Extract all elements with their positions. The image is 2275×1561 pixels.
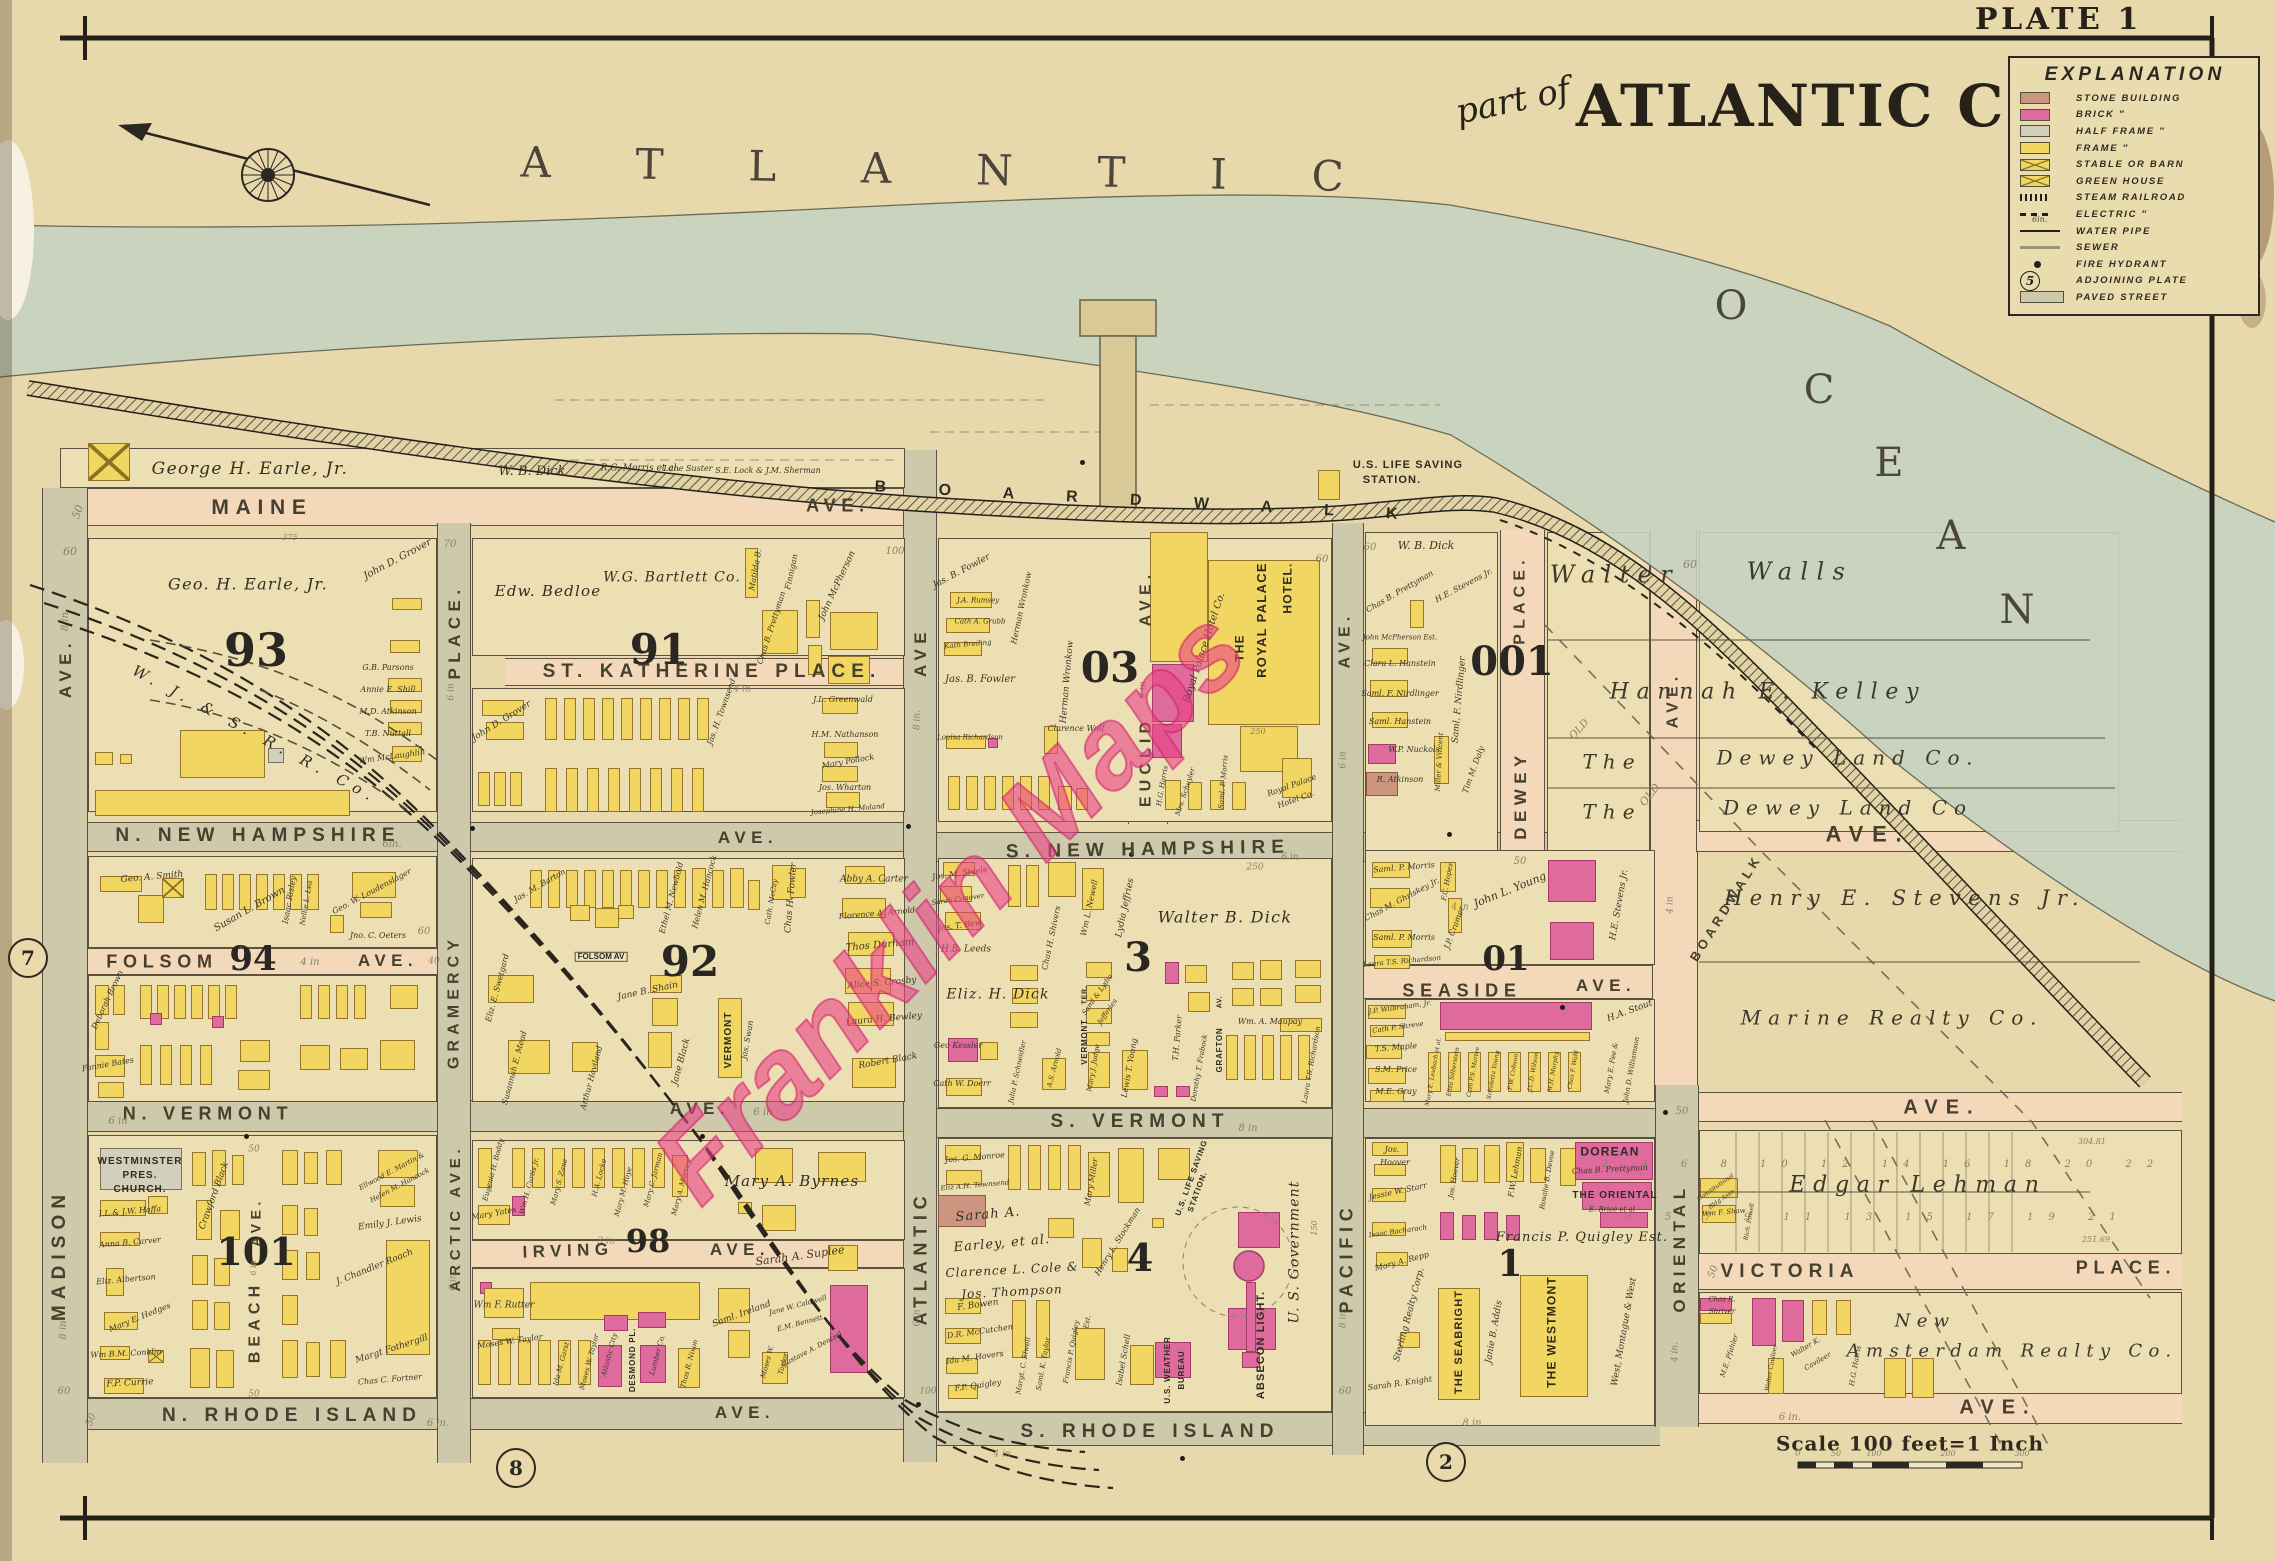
map-label: Fannie Bates: [81, 1056, 134, 1073]
map-label: PLACE.: [1513, 555, 1530, 644]
map-label: J.A. Rumsey: [957, 597, 999, 604]
map-label: J.C.D. Wilson: [1528, 1052, 1541, 1092]
legend-item: STEAM RAILROAD: [2020, 190, 2250, 207]
map-label: Hoover: [1380, 1159, 1410, 1167]
map-label: Mary M. Hoye: [614, 1166, 634, 1217]
legend-item: FRAME ″: [2020, 140, 2250, 157]
map-label: Cath A. Grubb: [955, 618, 1006, 625]
map-label: Clarence L. Cole &: [945, 1260, 1079, 1280]
map-label: Susannah E. Mead: [501, 1030, 529, 1106]
map-label: 3 in: [597, 1237, 614, 1246]
map-label: STATION.: [1363, 475, 1422, 487]
legend-symbol-shape: [2020, 159, 2050, 171]
map-label: Scholetta Young: [1487, 1050, 1502, 1100]
map-label: U. S. Government: [1288, 1180, 1303, 1323]
map-label: Moses W.: [760, 1345, 776, 1379]
adjoining-plate-number: 7: [8, 938, 48, 978]
map-label: FOLSOM AV: [575, 952, 628, 962]
legend-item: BRICK ″: [2020, 107, 2250, 124]
map-label: Geo. H. Earle, Jr.: [168, 577, 328, 594]
map-label: Eliz A.H. Townsend: [940, 1179, 1009, 1192]
map-label: H.M. Nathanson: [812, 731, 879, 739]
brick-legend-icon: [2020, 108, 2076, 122]
map-label: G.B. Parsons: [362, 664, 413, 672]
legend-item-label: FIRE HYDRANT: [2076, 259, 2167, 270]
map-label: Geo Kessler: [934, 1042, 982, 1050]
map-label: J. Chandler Roach: [335, 1248, 415, 1287]
map-label: Anna B. Carver: [99, 1236, 162, 1250]
map-label: Clara L. Hanstein: [1364, 660, 1436, 668]
map-label: 8 in: [59, 1320, 70, 1339]
map-label: West, Montague & West: [1611, 1277, 1639, 1387]
map-label: AVE.: [1666, 672, 1683, 729]
map-label: Edw. Bedloe: [495, 584, 602, 600]
map-label: 8 in: [1238, 1124, 1257, 1135]
map-label: John D. Williamson: [1623, 1036, 1642, 1103]
map-label: Jos. Hoover: [1448, 1157, 1462, 1199]
map-label: Annie E. Shill: [360, 686, 415, 694]
map-label: Mary Pollock: [821, 753, 875, 770]
legend-item: HALF FRAME ″: [2020, 123, 2250, 140]
map-label: B O A R D W A L K: [874, 479, 1422, 524]
map-label: Kath Breiling: [944, 639, 992, 650]
map-label: 2 4 6 8 10 12 14 16 18 20 22: [1602, 1160, 2168, 1171]
map-label: Geo. W. Loudenslager: [331, 868, 413, 917]
map-label: AVE.: [710, 1241, 770, 1259]
legend-symbol-shape: [2020, 291, 2064, 303]
map-label: Mary Miller: [1084, 1157, 1101, 1206]
legend-symbol-shape: [2020, 194, 2050, 201]
map-label: Thos R. Nixon: [680, 1339, 700, 1389]
map-label: Crawford Black: [198, 1161, 231, 1231]
map-label: N. NEW HAMPSHIRE: [115, 826, 400, 846]
map-label: 50: [70, 503, 86, 520]
map-label: DOREAN: [1580, 1146, 1639, 1159]
legend-symbol-shape: [2020, 142, 2050, 154]
legend-item-label: STONE BUILDING: [2076, 93, 2181, 104]
map-label: Geo. A. Smith: [120, 871, 183, 886]
map-label: SEASIDE: [1402, 982, 1521, 1001]
paved-legend-icon: [2020, 290, 2076, 304]
map-label: 60: [1683, 559, 1697, 571]
map-label: 8 in: [1462, 1419, 1481, 1430]
electric-legend-icon: [2020, 207, 2076, 221]
legend-item-label: PAVED STREET: [2076, 292, 2168, 303]
map-label: Saml. P. Morris: [1218, 755, 1230, 809]
legend-item: STONE BUILDING: [2020, 90, 2250, 107]
map-label: 98: [626, 1225, 671, 1259]
map-label: PLACE.: [446, 585, 464, 680]
legend-symbol-shape: [2034, 261, 2041, 268]
legend-item-label: ELECTRIC ″: [2076, 209, 2148, 220]
map-label: 50: [85, 1412, 99, 1428]
map-label: Hannah E. Kelley: [1610, 680, 1927, 703]
map-label: Edgar Lehman: [1789, 1173, 2046, 1196]
map-label: AVE.: [358, 952, 418, 970]
map-label: Saml. F. Nirdlinger: [1361, 690, 1438, 698]
map-label: Jas. B. Fowler: [945, 675, 1015, 686]
map-label: Marine Realty Co.: [1741, 1008, 2044, 1029]
map-label: BEACH: [248, 1281, 265, 1364]
map-label: F.P. Quigley: [954, 1379, 1002, 1394]
map-label: AVE.: [715, 1404, 775, 1422]
map-label: A: [1937, 515, 2000, 557]
map-label: Eliza Silberstein: [1447, 1047, 1462, 1097]
map-label: ARCTIC AVE.: [448, 1145, 464, 1292]
map-label: T.H. Parker: [1172, 1015, 1184, 1061]
map-label: 60: [418, 927, 431, 938]
map-label: S.E. Lock & J.M. Sherman: [715, 467, 820, 475]
map-label: Jos. G. Monroe: [945, 1151, 1005, 1165]
map-label: Herman Wronkow: [1010, 571, 1034, 645]
map-label: Nellie L. Lea: [299, 880, 314, 926]
legend-item-label: ADJOINING PLATE: [2076, 275, 2188, 286]
map-label: Eugenia H. Boddy: [482, 1138, 506, 1202]
map-label: 250: [1250, 728, 1265, 736]
map-label: Dewey Land Co.: [1716, 748, 1979, 769]
map-label: 50: [1707, 1264, 1721, 1280]
sewer-legend-icon: [2020, 241, 2076, 255]
adjoining-plate-number: 2: [1426, 1442, 1466, 1482]
map-label: F.W. Lehman: [1507, 1146, 1524, 1198]
map-label: Chas B. Prettyman: [1365, 569, 1435, 614]
map-label: S. RHODE ISLAND: [1020, 1422, 1279, 1442]
map-label: VERMONT: [1081, 1019, 1089, 1065]
map-label: Isaac Risley: [282, 875, 299, 924]
map-label: Francis P. Quigley: [1063, 1320, 1081, 1384]
map-label: R. Atkinson: [1377, 776, 1424, 784]
map-label: Jas. M. Barton: [513, 868, 568, 904]
map-label: 0: [1795, 1449, 1801, 1458]
map-label: Mary E. Hedges: [108, 1302, 172, 1334]
map-label: New: [1895, 1313, 1956, 1332]
map-label: Henry E. Stevens Jr.: [1724, 887, 2086, 909]
map-label: John McPherson Est.: [1363, 634, 1437, 641]
plate-legend-icon: 5: [2020, 274, 2076, 288]
map-label: Walls: [1747, 559, 1854, 584]
map-label: Susan L. Brown: [213, 885, 288, 934]
map-label: Isabel Schell: [1115, 1334, 1132, 1387]
map-label: Chas M. Ghriskey Jr.: [1363, 877, 1441, 924]
map-label: W. B. Dick: [499, 465, 566, 479]
map-label: Chas H. Fowler: [784, 862, 800, 933]
map-label: Sterling Realty Corp.: [1393, 1267, 1427, 1363]
map-label: N. VERMONT: [123, 1105, 294, 1124]
map-label: O: [1715, 285, 1782, 327]
map-label: AVE.: [1826, 822, 1911, 845]
rail-legend-icon: [2020, 191, 2076, 205]
map-label: 4 in: [1666, 896, 1675, 913]
map-label: J.P. Wilbraham, Jr.: [1368, 1000, 1432, 1016]
map-label: Saml. F. Nirdlinger: [1452, 656, 1469, 743]
map-label: Cath P.S. Martee: [1466, 1046, 1481, 1097]
map-label: M.E. Gray: [1375, 1088, 1416, 1096]
map-label: Saml. Hanstein: [1369, 718, 1431, 726]
legend-item-label: STEAM RAILROAD: [2076, 192, 2186, 203]
map-label: THE ORIENTAL: [1572, 1191, 1657, 1202]
legend-symbol-shape: [2020, 175, 2050, 187]
hydrant-legend-icon: [2020, 257, 2076, 271]
map-label: Margt Fothergill: [355, 1334, 430, 1366]
map-label: E.M. Bennett: [776, 1314, 823, 1333]
map-label: Ida M. Garst: [553, 1341, 572, 1386]
map-label: Eliz. Albertson: [96, 1273, 156, 1287]
legend-symbol-shape: [2020, 246, 2060, 249]
map-label: Jas. B. Fowler: [932, 553, 992, 591]
map-label: Lumber Co.: [649, 1334, 667, 1376]
map-label: 3: [1124, 937, 1152, 979]
legend-symbol-shape: [2020, 109, 2050, 121]
map-label: Deborah Brown: [91, 969, 126, 1030]
legend-item: STABLE OR BARN: [2020, 156, 2250, 173]
legend-item: PAVED STREET: [2020, 289, 2250, 306]
legend-item: GREEN HOUSE: [2020, 173, 2250, 190]
map-label: HOTEL.: [1282, 562, 1295, 613]
map-label: John D. Grover: [362, 538, 433, 583]
map-label: Jos.: [1385, 1146, 1400, 1154]
map-label: OLD: [1568, 718, 1591, 742]
map-label: Cath W. Doerr: [933, 1080, 990, 1088]
map-label: PRES.: [122, 1171, 157, 1182]
map-label: Jno. C. Oeters: [350, 932, 406, 940]
map-label: H.A. Locke: [591, 1158, 608, 1198]
map-label: 92: [661, 940, 719, 984]
map-label: Lydia Jeffries: [1115, 878, 1137, 939]
map-label: Ethel M. Newbold: [658, 861, 685, 934]
map-label: 6in.: [382, 840, 401, 851]
map-label: N: [2000, 589, 2069, 631]
legend-item-label: GREEN HOUSE: [2076, 176, 2165, 187]
map-label: Moses W. Taylor: [477, 1333, 543, 1350]
map-label: 50: [1831, 1450, 1841, 1458]
map-label: 4 in: [733, 685, 750, 694]
map-label: Janie B. Addis: [1485, 1300, 1505, 1364]
legend-item-label: WATER PIPE: [2076, 226, 2151, 237]
green-legend-icon: [2020, 174, 2076, 188]
legend-item: ELECTRIC ″: [2020, 206, 2250, 223]
map-label: J.L. Greenwald: [813, 696, 873, 704]
map-label: Jos. Wharton: [819, 784, 871, 792]
map-label: Lane Suster: [663, 465, 712, 473]
map-label: 60: [63, 546, 77, 558]
map-label: AVE.: [249, 1197, 264, 1247]
legend-item-label: HALF FRAME ″: [2076, 126, 2165, 137]
stable-legend-icon: [2020, 158, 2076, 172]
map-label: AV.: [1216, 996, 1223, 1009]
map-label: AVE.: [806, 497, 870, 516]
map-label: THE SEABRIGHT: [1454, 1290, 1466, 1394]
map-label: 8 in.: [913, 710, 922, 730]
map-label: Cath. McCay: [764, 879, 779, 925]
map-label: M.D. Atkinson: [359, 708, 416, 716]
map-label: PLACE.: [2076, 1259, 2177, 1278]
map-label: D.R. McCutchen: [947, 1323, 1014, 1341]
map-label: 8 in.: [1339, 1308, 1348, 1328]
map-label: AVE.: [57, 638, 75, 698]
map-label: 50: [1676, 1107, 1689, 1118]
map-label: Louisa Richardson: [937, 734, 1003, 741]
map-label: Jos. Thompson: [961, 1283, 1063, 1301]
frame-legend-icon: [2020, 141, 2076, 155]
map-label: 6 in: [250, 1260, 258, 1275]
map-label: Jefferies: [1097, 998, 1120, 1026]
map-label: Chas C. Fortner: [358, 1373, 423, 1387]
map-label: Moses W. Taylor: [579, 1333, 601, 1390]
map-label: 60: [1316, 555, 1329, 566]
map-label: Cath P. Shreve: [1372, 1021, 1424, 1035]
map-title-prefix: part of: [1452, 69, 1574, 132]
legend-item: 6in.WATER PIPE: [2020, 223, 2250, 240]
map-label: Chas H. Shivers: [1041, 905, 1063, 970]
map-label: The: [1582, 752, 1641, 773]
map-label: F.W. Cobson: [1508, 1053, 1521, 1090]
map-label: Mary E. Leubach et al.: [1425, 1037, 1443, 1106]
map-label: Jas. H. Townsend: [706, 678, 738, 747]
legend-symbol-shape: [2020, 92, 2050, 104]
map-label: AVE.: [1959, 1398, 2036, 1419]
map-label: Dorothy T. Frabock: [1190, 1034, 1209, 1102]
map-label: The: [1582, 802, 1641, 823]
map-label: 70: [444, 540, 457, 551]
map-label: W. B. Dick: [1398, 540, 1455, 552]
map-label: F.C. Hopes: [1441, 863, 1455, 902]
map-label: 50: [1514, 857, 1527, 868]
map-label: Lewis T. Young: [1121, 1038, 1140, 1099]
map-label: George H. Earle, Jr.: [152, 461, 349, 479]
map-label: 60: [1364, 543, 1377, 554]
map-label: 1: [1497, 1246, 1522, 1284]
map-label: S.M. Price: [1375, 1066, 1417, 1074]
map-label: Saml. P. Morris: [1373, 934, 1435, 942]
map-label: Dewey Land Co: [1723, 798, 1973, 819]
map-label: Josephine H. Moland: [811, 803, 886, 817]
map-label: A T L A N T I C: [520, 140, 1380, 199]
map-label: 3 5 7 9 11 13 15 17 19 21: [1625, 1213, 2130, 1224]
map-label: AVE.: [1576, 977, 1636, 995]
map-label: Chas B. Prettyman: [756, 591, 787, 666]
map-label: GRAMERCY: [447, 935, 464, 1069]
map-label: 60: [1339, 1387, 1352, 1398]
map-label: F.P. Currie: [106, 1378, 154, 1390]
legend-item: FIRE HYDRANT: [2020, 256, 2250, 273]
map-label: Jane B. Shain: [617, 981, 679, 1003]
map-label: 6 in: [108, 1117, 127, 1128]
map-label: U.S. WEATHER: [1164, 1336, 1172, 1403]
map-label: Matilda B.: [748, 549, 764, 592]
map-label: Eliz. H. Dick: [946, 988, 1049, 1003]
map-label: Tim M. Daly: [1462, 745, 1487, 794]
map-label: Wm. A. Maupay: [1238, 1018, 1302, 1026]
map-label: 100: [919, 1387, 936, 1396]
map-label: ATLANTIC: [912, 1191, 931, 1326]
map-label: Gustave A. Dentzel: [780, 1331, 843, 1369]
map-label: Sarah R. Knight: [1367, 1375, 1432, 1392]
map-label: Ida M. Hovers: [946, 1350, 1004, 1366]
map-label: M.E. Pfahler: [1720, 1334, 1741, 1379]
map-label: Saml. K. Taylor: [1036, 1337, 1053, 1391]
map-label: Walter: [1550, 562, 1680, 587]
map-label: E: [1874, 442, 1937, 484]
legend-symbol-shape: [2020, 230, 2060, 232]
map-label: GRAFTON: [1216, 1027, 1224, 1072]
map-label: Wm B.M. Conklin: [90, 1348, 162, 1360]
map-label: WESTMINSTER: [98, 1157, 183, 1168]
map-label: 251.69: [2082, 1236, 2110, 1244]
map-label: Mary S. Zane: [550, 1158, 569, 1206]
map-label: MADISON: [50, 1189, 70, 1321]
map-label: 01: [1482, 942, 1529, 978]
map-label: Chas R.: [1708, 1296, 1735, 1303]
map-label: W.P. Nuckols: [1388, 746, 1439, 754]
map-label: AVE: [912, 627, 930, 677]
map-label: Wm L. Newell: [1080, 879, 1100, 937]
map-label: Laura T.S. Richardson: [1363, 955, 1442, 969]
map-label: Eliz. E. Swetgard: [485, 953, 511, 1023]
map-label: FOLSOM: [106, 953, 218, 972]
map-label: Miller & Vincent: [1435, 732, 1445, 791]
map-label: Amsterdam Realty Co.: [1847, 1343, 2178, 1362]
map-page: A T L A N T I COCEANB O A R D W A L KGeo…: [0, 0, 2275, 1561]
map-label: Mrs. Schuyler: [1175, 767, 1197, 817]
map-label: AVE.: [1338, 612, 1355, 669]
map-label: 6 in: [1339, 751, 1348, 768]
map-label: John D. Grover: [471, 700, 533, 744]
map-label: Wm McLaughlin: [358, 748, 425, 766]
map-label: Est.: [1083, 1315, 1093, 1330]
map-label: Laura T.S. Richardson: [1302, 1026, 1323, 1104]
map-label: Atlantic City: [601, 1333, 620, 1378]
map-label: DEWEY: [1512, 750, 1530, 840]
map-label: Wm H. Curtis Jr.: [519, 1157, 541, 1215]
map-label: 6 in: [449, 1273, 458, 1290]
map-label: TER.: [1081, 986, 1088, 1005]
map-label: 94: [229, 942, 276, 978]
map-label: 8 in.: [61, 609, 72, 631]
map-label: 6 in: [913, 1309, 922, 1326]
map-label: Margt. C. Elwell: [1015, 1337, 1032, 1395]
stone-legend-icon: [2020, 91, 2076, 105]
map-label: CHURCH.: [113, 1185, 166, 1196]
map-label: John L. Young: [1472, 870, 1548, 910]
map-label: OLD: [1638, 782, 1663, 809]
half-legend-icon: [2020, 124, 2076, 138]
map-label: John McPherson: [818, 550, 858, 622]
map-label: C: [1804, 369, 1869, 411]
map-label: THE WESTMONT: [1546, 1276, 1559, 1388]
map-label: 200: [1940, 1450, 1955, 1458]
map-label: Sarah A.: [955, 1205, 1021, 1224]
map-label: M.H. Murphy: [1547, 1051, 1560, 1093]
legend-item: 5ADJOINING PLATE: [2020, 273, 2250, 290]
map-label: BUREAU: [1178, 1350, 1186, 1389]
legend-symbol-note: 6in.: [2032, 215, 2047, 224]
map-label: 4 in: [993, 1450, 1010, 1459]
map-label: Saml. P. Morris: [1373, 861, 1435, 875]
map-label: AVE.: [718, 829, 778, 847]
map-label: Isaac Bacharach: [1368, 1224, 1427, 1239]
map-label: Chas F. Wahl: [1568, 1050, 1581, 1090]
map-label: 6 in.: [1779, 1413, 1801, 1424]
map-label: Helen M. Hancock: [691, 854, 719, 929]
map-label: ST. KATHERINE PLACE.: [543, 662, 882, 682]
map-label: S. VERMONT: [1050, 1112, 1229, 1132]
map-label: Arthur Haviland: [579, 1045, 604, 1111]
map-label: ORIENTAL: [1671, 1183, 1689, 1312]
map-label: AVE.: [1903, 1098, 1980, 1119]
map-label: Mary Yates: [471, 1206, 517, 1222]
map-label: 001: [1470, 641, 1554, 683]
map-label: Earley, et al.: [953, 1233, 1051, 1255]
